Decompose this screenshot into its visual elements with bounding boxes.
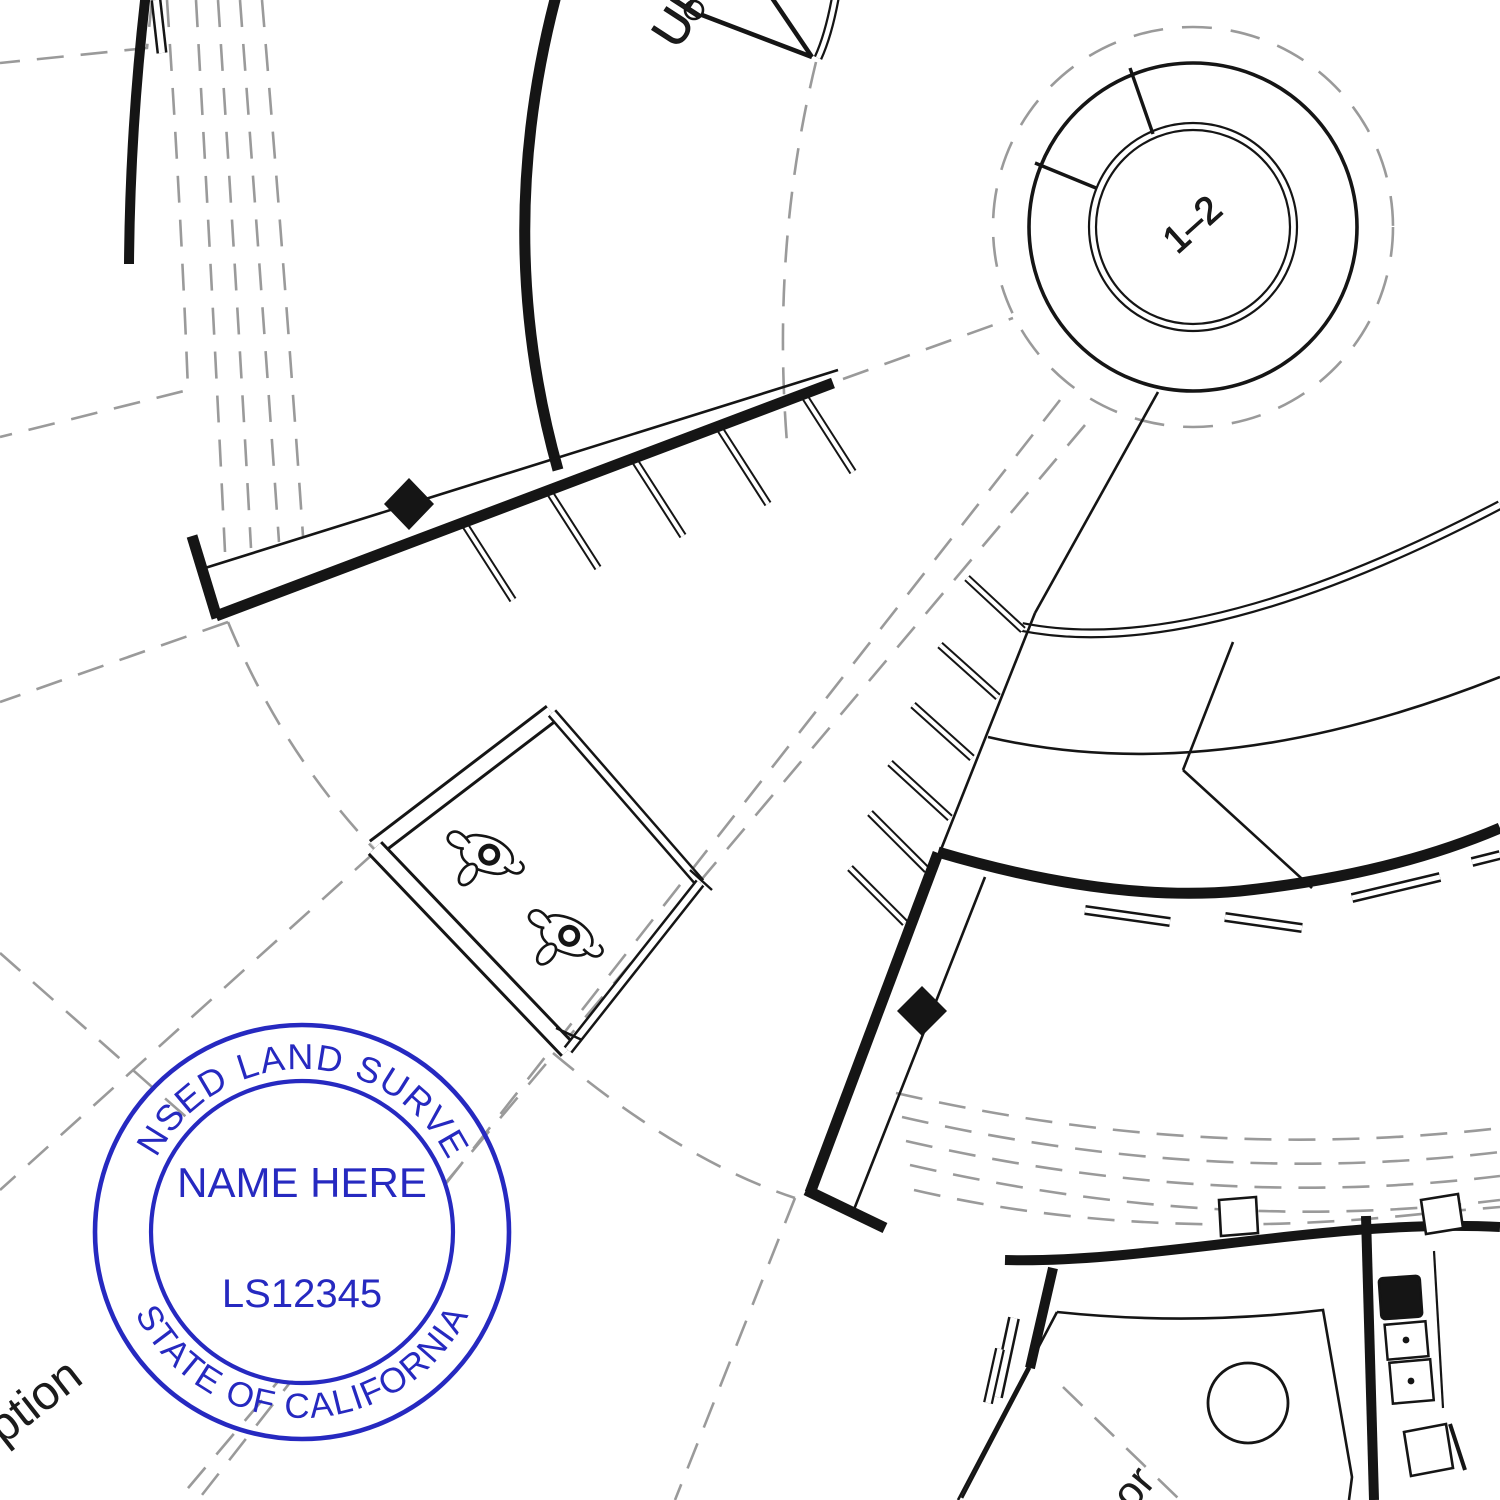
room-divider-c xyxy=(940,613,1035,852)
up-label: UP xyxy=(642,0,723,57)
stamp-license-text: LS12345 xyxy=(222,1272,382,1316)
stair-wall-corner xyxy=(192,536,217,618)
room-divider-b xyxy=(1183,770,1312,888)
stove-icon xyxy=(1379,1276,1423,1320)
arrow-rail-double xyxy=(818,0,836,58)
grid-column-square xyxy=(1219,1197,1258,1236)
guide-ray-corridor xyxy=(675,1198,795,1500)
round-table-icon xyxy=(1208,1363,1288,1443)
mid-arc xyxy=(988,677,1500,754)
guide-arc-5 xyxy=(262,0,303,536)
guide-ray-stair-to-spiral xyxy=(843,318,1013,379)
guide-arc-br-2 xyxy=(902,1117,1500,1164)
entry-wall-thick xyxy=(1030,1268,1053,1368)
spiral-step-a xyxy=(1130,68,1153,134)
door-leaf-topleft xyxy=(156,0,162,53)
stamp-name-text: NAME HERE xyxy=(177,1159,427,1206)
guide-arc-room-to-corridor xyxy=(553,1053,795,1198)
guide-arc-3 xyxy=(218,0,251,548)
corridor-label: or xyxy=(1102,1457,1165,1500)
counter-divider-line xyxy=(1434,1251,1443,1408)
kitchen-area xyxy=(958,1194,1500,1500)
guide-arc-br-1 xyxy=(896,1093,1500,1140)
surveyor-stamp: LICENSED LAND SURVEYOR STATE OF CALIFORN… xyxy=(0,0,509,1439)
right-rooms xyxy=(938,392,1500,928)
lobby-room xyxy=(375,713,712,1050)
stamp-arc-top-text: LICENSED LAND SURVEYOR xyxy=(0,0,478,1165)
guide-arc-2 xyxy=(196,0,225,552)
up-arrow: UP xyxy=(642,0,836,58)
corridor-wall-corner xyxy=(806,1190,885,1228)
guide-arc-corner-to-room xyxy=(228,622,375,850)
sink-icon xyxy=(1385,1321,1429,1359)
corridor-thin-line xyxy=(853,877,985,1212)
door-leaf-entry xyxy=(988,1318,1014,1403)
outer-wall-arc-left xyxy=(129,0,146,264)
balustrade-double-arc xyxy=(1022,505,1500,633)
curved-wall-arc xyxy=(525,0,558,470)
person-icon xyxy=(513,904,610,986)
floor-plan-drawing: UP 1–2 xyxy=(0,0,1500,1500)
spiral-step-b xyxy=(1035,163,1096,188)
counter-cabinet xyxy=(1404,1424,1453,1476)
spiral-stair: 1–2 xyxy=(1029,63,1357,391)
guide-arc-br-4 xyxy=(910,1165,1500,1212)
sink-icon xyxy=(1389,1359,1433,1403)
stair-range-label: 1–2 xyxy=(1155,188,1230,262)
guide-arc-1 xyxy=(0,0,188,437)
stamp-inner-fill xyxy=(153,1083,451,1381)
grid-column-square xyxy=(1421,1194,1463,1234)
upper-stair xyxy=(192,0,853,618)
reception-label: eption xyxy=(0,1348,92,1470)
column-diamond-icon xyxy=(384,478,434,530)
guide-ray-left xyxy=(0,622,228,702)
left-outer-wall xyxy=(129,0,162,264)
kitchen-room-outline xyxy=(1057,1310,1352,1500)
stair-wall xyxy=(216,383,833,616)
person-icon xyxy=(435,825,530,903)
counter-wall-thick xyxy=(1366,1216,1374,1500)
room-divider-d xyxy=(1035,392,1158,613)
guide-corner-topleft xyxy=(0,0,152,63)
guide-arc-br-3 xyxy=(906,1141,1500,1188)
floor-plan-page: UP 1–2 xyxy=(0,0,1500,1500)
